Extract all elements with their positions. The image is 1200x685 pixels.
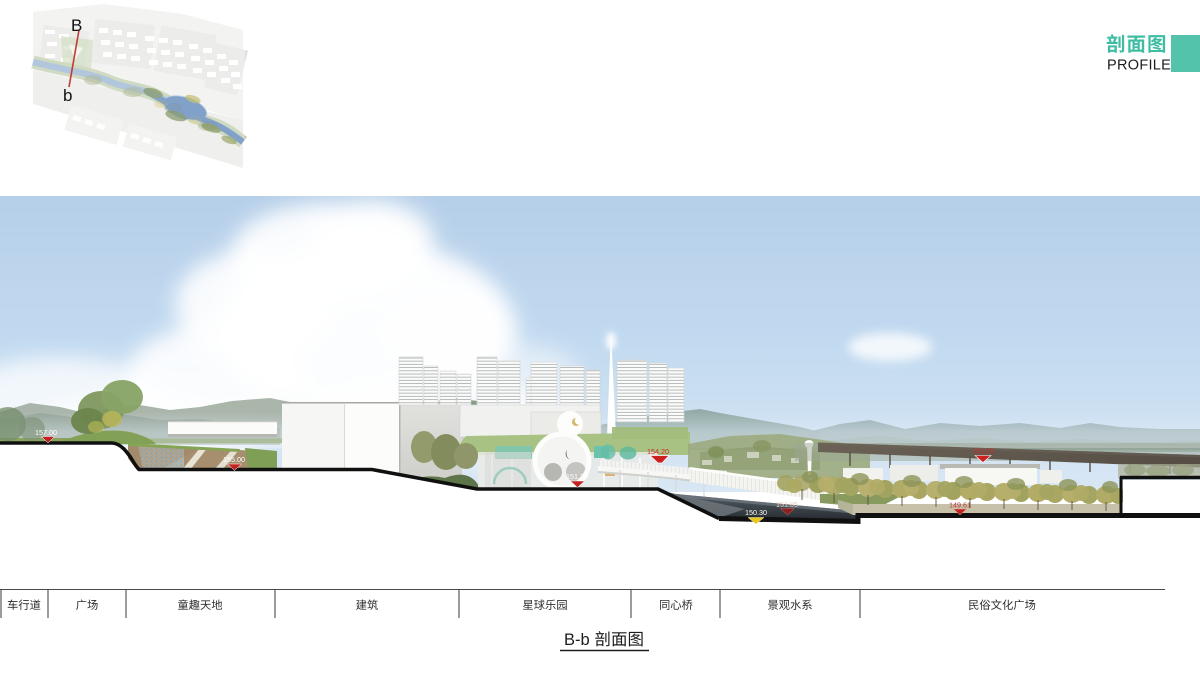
svg-text:157.00: 157.00 [35,428,57,437]
svg-text:155.00: 155.00 [223,455,245,464]
svg-text:PROFILE: PROFILE [1107,58,1171,74]
svg-text:154.20: 154.20 [972,447,994,456]
svg-text:b: b [63,86,72,105]
svg-text:149.61: 149.61 [949,501,971,510]
svg-text:150.30: 150.30 [745,508,767,517]
svg-text:151.05: 151.05 [776,500,798,509]
svg-text:B-b: B-b [564,631,590,649]
svg-text:151.30: 151.30 [566,472,588,481]
svg-text:154.20: 154.20 [647,447,669,456]
svg-text:B: B [71,16,82,35]
